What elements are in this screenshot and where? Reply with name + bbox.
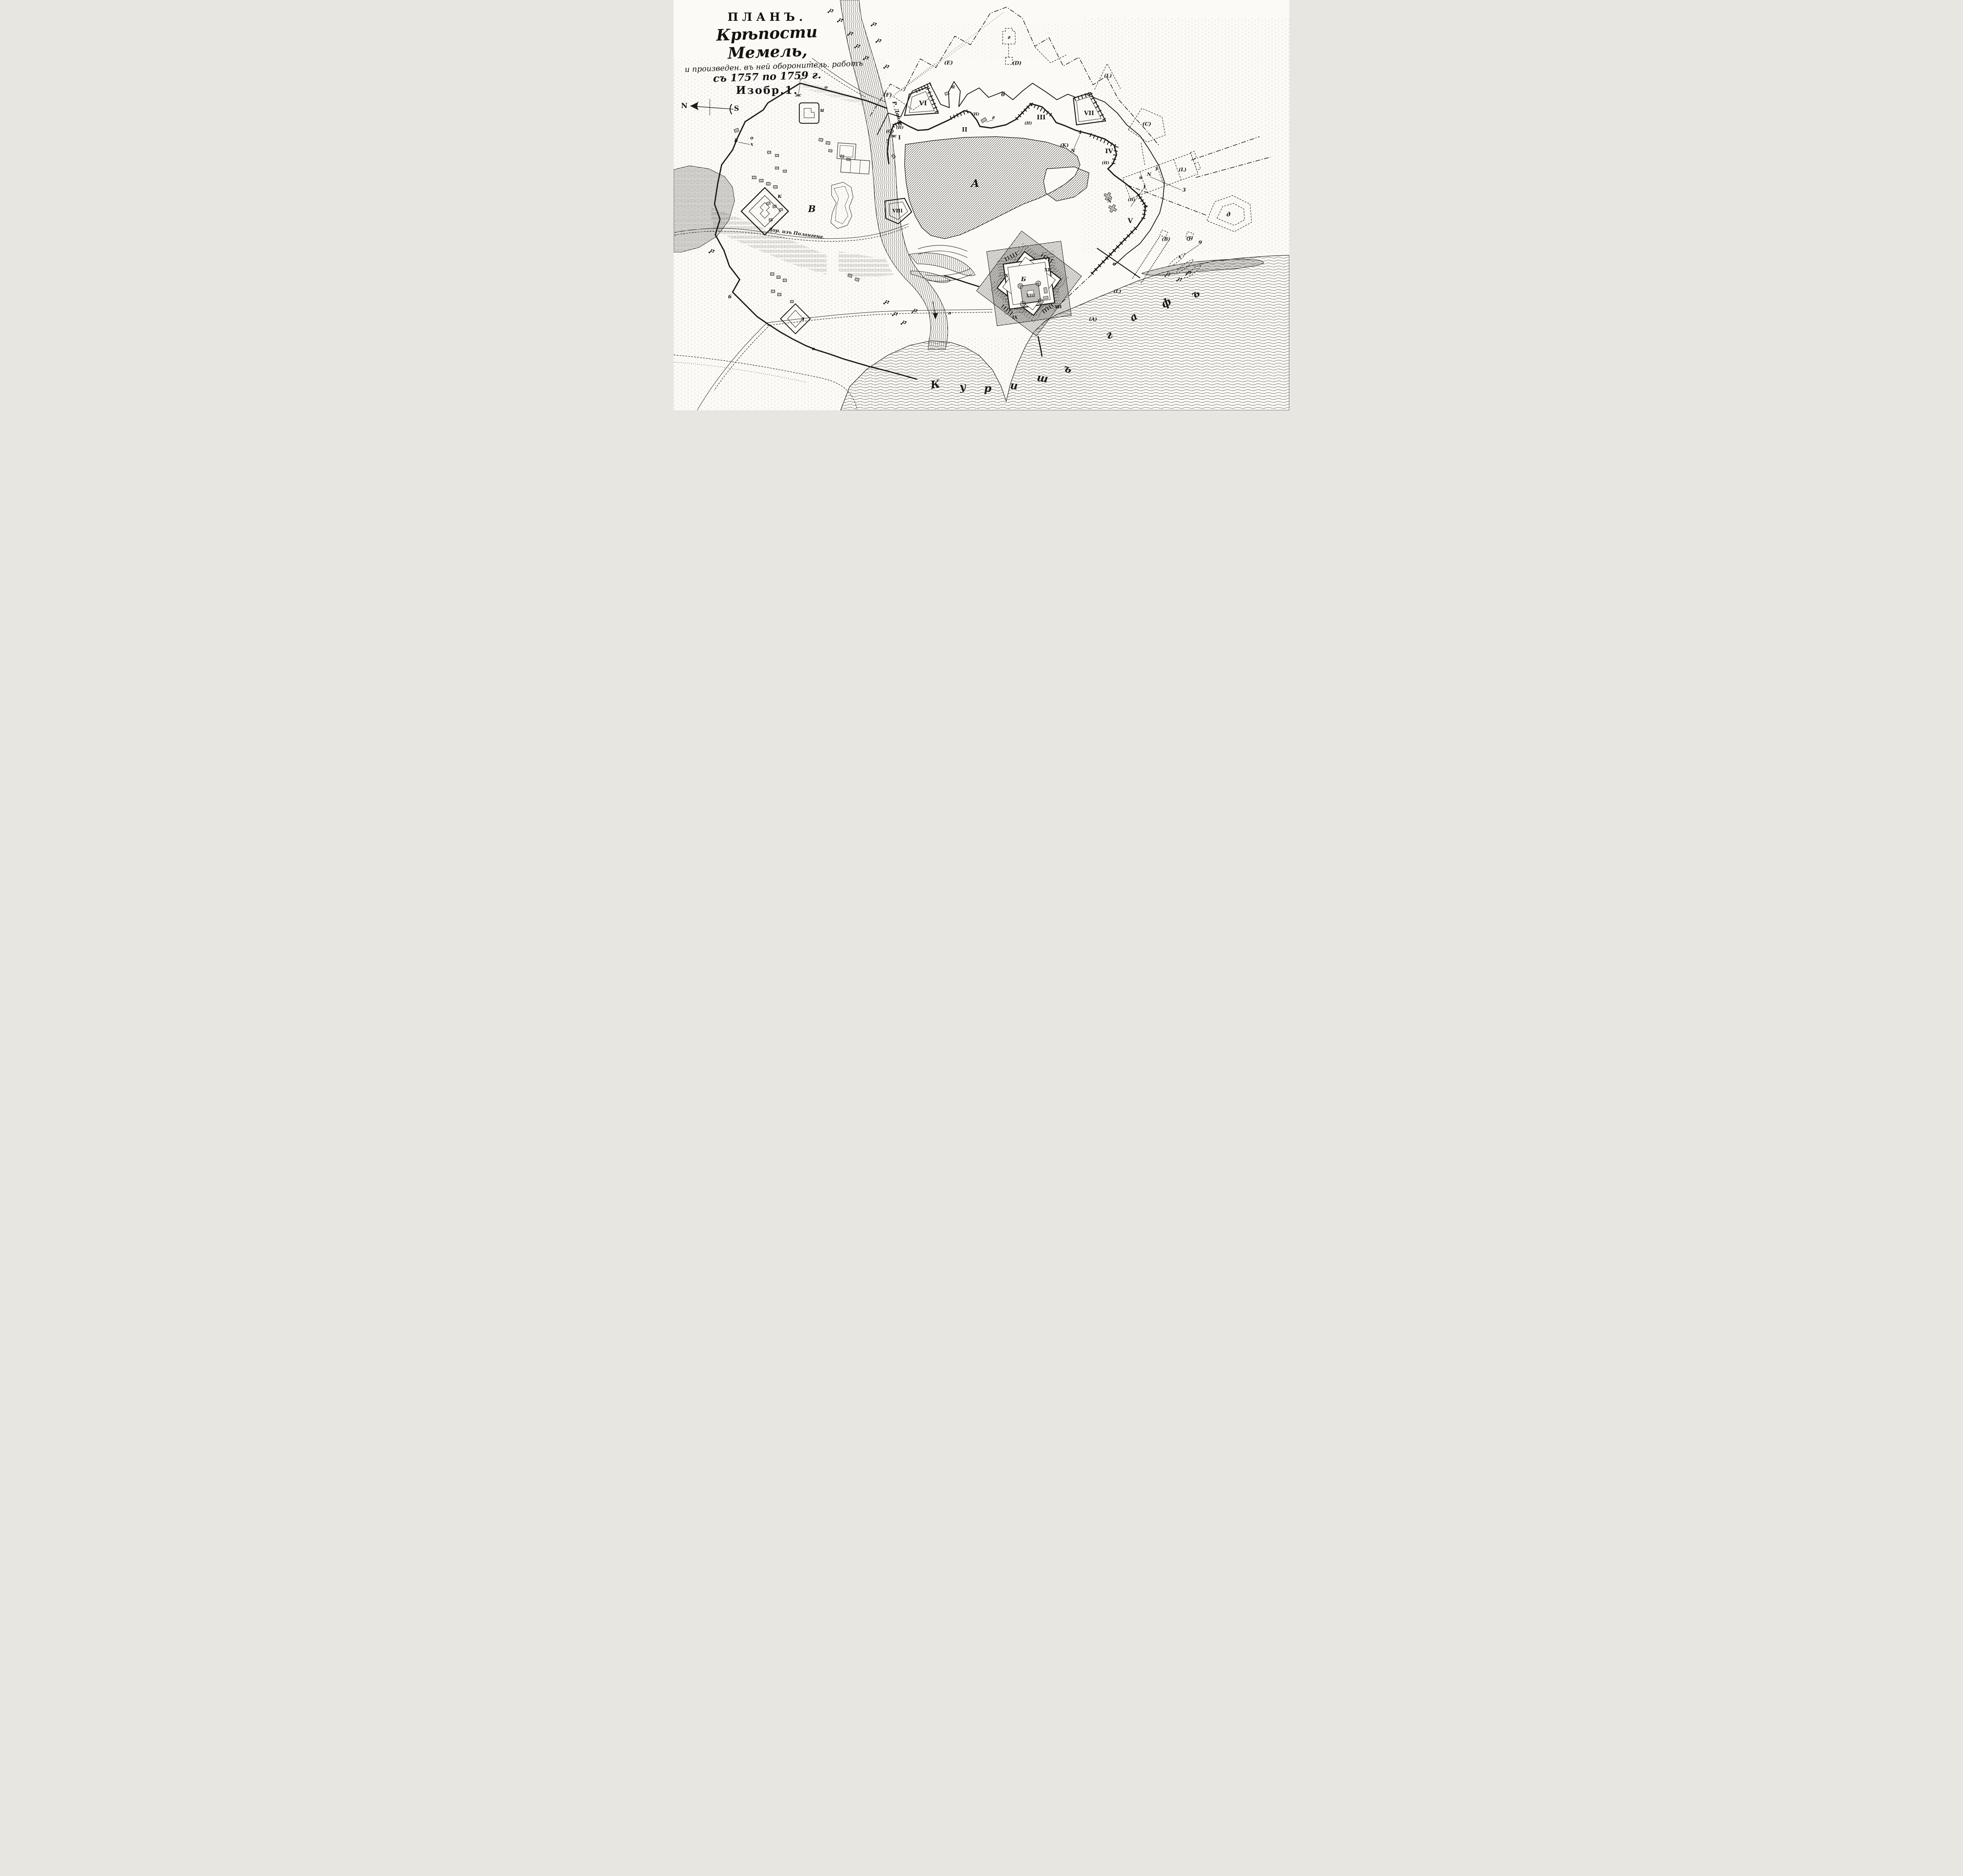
map-label-а: а: [951, 84, 955, 90]
map-label-XIII: XIII: [1026, 294, 1035, 298]
map-label-и: и: [820, 107, 824, 113]
map-label-H: (H): [1025, 121, 1032, 126]
map-label-4: 4: [1078, 130, 1082, 135]
map-stage: NSР. ДангеДор. изъ Полангена.АВБдIIIIIII…: [674, 0, 1289, 410]
map-label-II: II: [962, 126, 967, 133]
map-label-L: (L): [1104, 73, 1112, 79]
map-label-в: в: [1139, 175, 1143, 181]
map-label-N: N: [681, 102, 687, 110]
map-label-В: В: [808, 204, 815, 214]
map-label-3: 3: [1182, 187, 1186, 193]
city-block-a: [905, 137, 1089, 239]
map-label-IV: IV: [1105, 147, 1113, 155]
map-label-H: (H): [896, 126, 904, 130]
map-label-H: (H): [972, 112, 980, 117]
title-figure-number: Изобр.1.: [685, 84, 850, 97]
map-label-е: е: [1113, 261, 1116, 267]
map-label-A: (A): [1089, 316, 1097, 322]
map-label-XII: XII: [1055, 304, 1062, 309]
map-label-V: V: [1127, 217, 1133, 225]
map-label-B: (B): [1162, 236, 1170, 242]
map-label-N: N: [1071, 148, 1076, 154]
map-label-E: (E): [944, 60, 953, 66]
map-label-А: А: [970, 178, 979, 190]
map-label-о: о: [948, 310, 951, 316]
map-label-III: III: [1037, 113, 1045, 121]
map-label-1: 1: [1142, 184, 1146, 190]
map-label-L: (L): [1113, 289, 1121, 294]
map-label-к: к: [778, 192, 782, 199]
map-label-N: N: [1107, 198, 1112, 204]
map-label-ж: ж: [890, 133, 897, 139]
title-fortress-name: Крѣпости Мемель,: [684, 22, 850, 64]
map-label-H: (H): [1102, 161, 1109, 165]
map-label-6: 6: [728, 294, 731, 300]
map-label-IX: IX: [1012, 315, 1018, 320]
map-label-8: 8: [734, 138, 738, 144]
map-label-9: 9: [1198, 240, 1202, 246]
map-label-L: (L): [1179, 167, 1186, 172]
title-plan: ПЛАНЪ.: [685, 10, 850, 24]
map-label-о: о: [812, 346, 815, 351]
map-label-г: г: [992, 115, 995, 121]
map-label-K: (K): [1060, 143, 1069, 148]
map-label-X: X: [1005, 273, 1009, 278]
map-title: ПЛАНЪ. Крѣпости Мемель, и произведен. въ…: [685, 10, 850, 97]
map-label-х: х: [1178, 254, 1181, 260]
map-label-РДанге: Р. Данге: [891, 100, 903, 126]
map-label-д: д: [1226, 211, 1230, 218]
map-label-VI: VI: [919, 99, 927, 107]
map-label-х: х: [750, 141, 753, 147]
map-label-у: у: [1155, 165, 1158, 171]
map-label-D: (D): [1012, 60, 1022, 66]
map-label-г: г: [1007, 35, 1011, 40]
map-label-о: о: [750, 135, 753, 141]
map-label-и: и: [1010, 379, 1018, 392]
map-label-б: б: [1001, 91, 1005, 98]
map-label-5: 5: [886, 139, 889, 144]
map-label-N: N: [1147, 172, 1152, 177]
map-label-J: (J): [1186, 236, 1193, 241]
map-label-л: л: [801, 316, 804, 322]
map-label-S: S: [734, 104, 739, 113]
map-label-VIII: VIII: [892, 208, 903, 214]
map-label-р: р: [984, 382, 992, 395]
map-label-I: I: [898, 135, 901, 141]
map-label-H: (H): [1128, 198, 1135, 202]
map-label-Б: Б: [1021, 276, 1026, 283]
map-label-XI: XI: [1044, 267, 1050, 272]
map-label-ш: ш: [1036, 371, 1049, 385]
map-label-VII: VII: [1084, 110, 1094, 117]
map-label-C: (C): [1142, 121, 1151, 127]
map-label-F: (F): [883, 92, 892, 98]
